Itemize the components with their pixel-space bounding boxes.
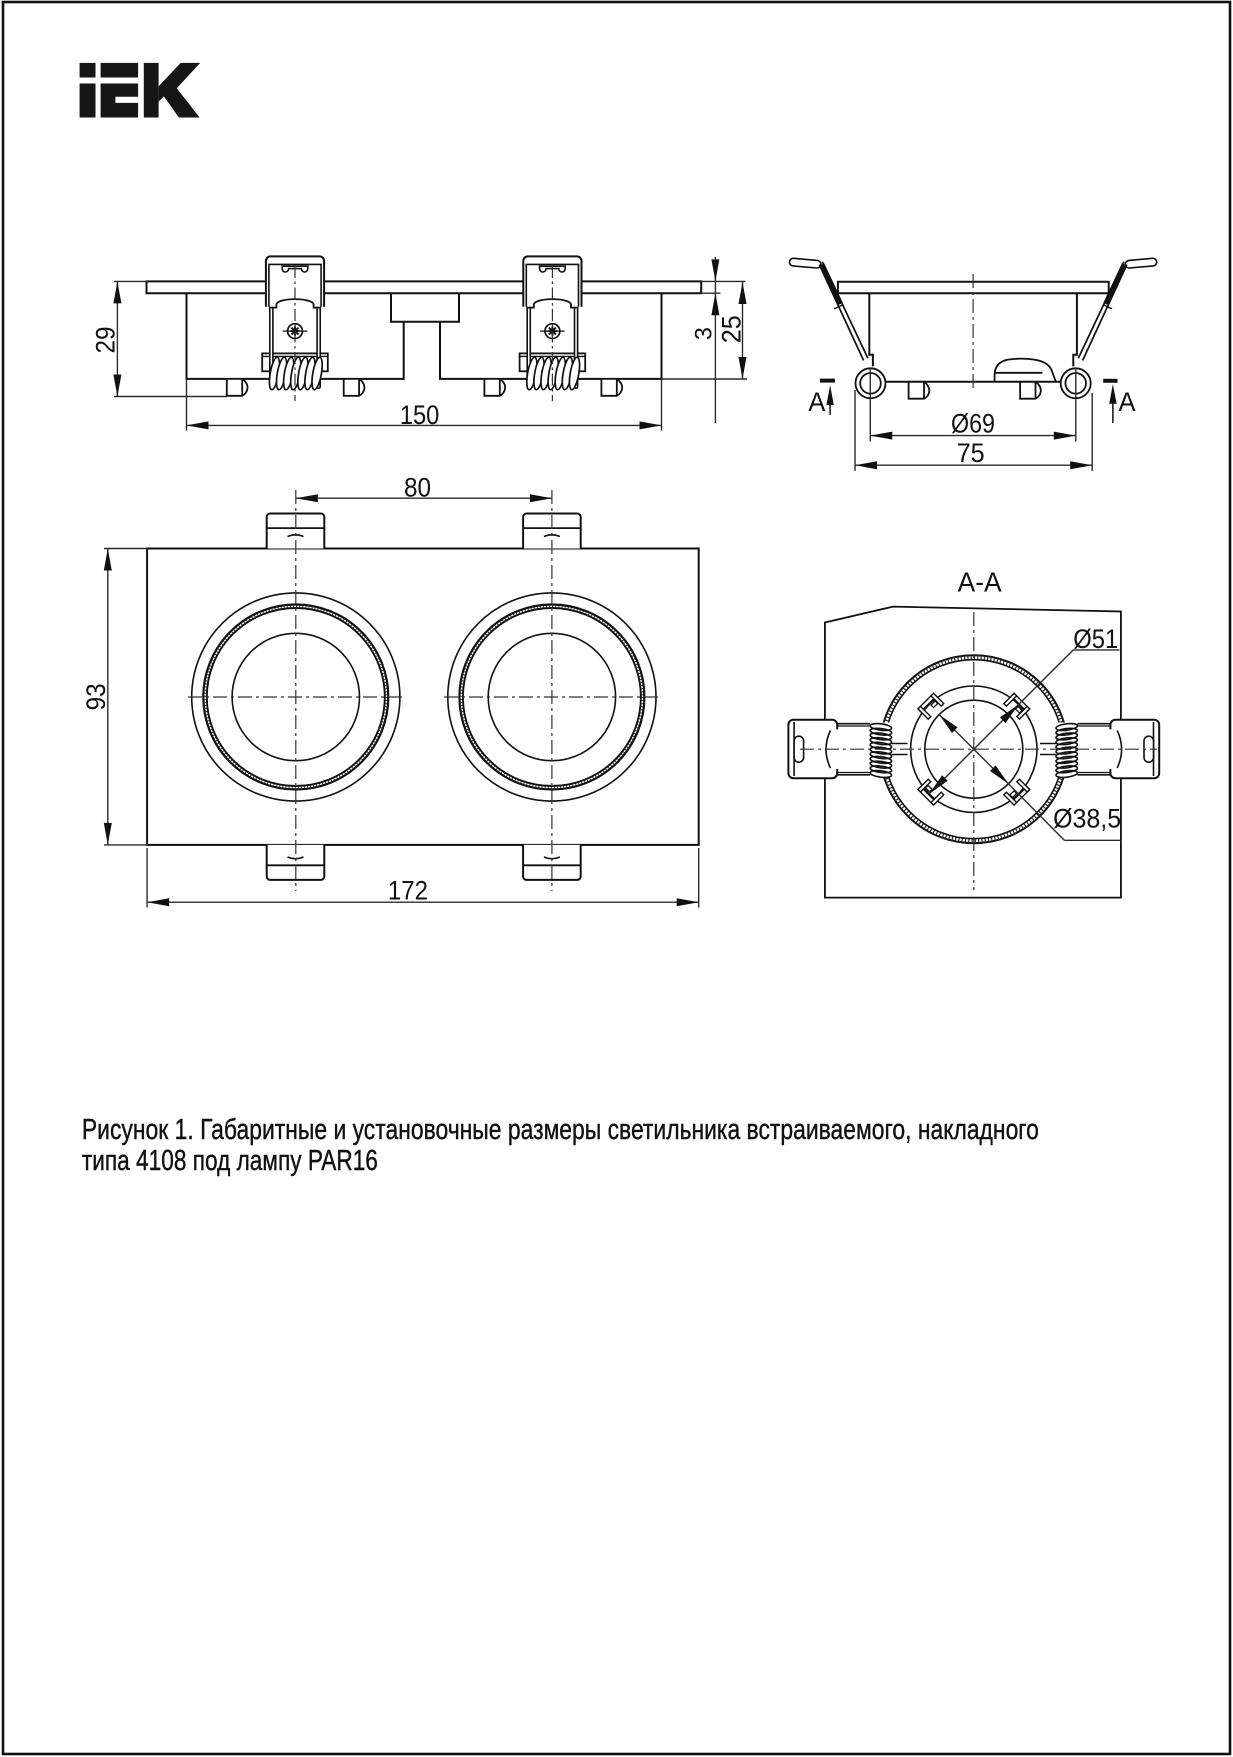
svg-text:Рисунок 1. Габаритные и устано: Рисунок 1. Габаритные и установочные раз… [82,1114,1039,1146]
svg-text:75: 75 [957,438,985,468]
svg-text:150: 150 [400,400,440,430]
svg-text:93: 93 [81,683,111,710]
svg-text:172: 172 [388,875,428,905]
svg-text:A-A: A-A [958,567,1002,598]
svg-text:29: 29 [91,327,121,354]
svg-text:25: 25 [717,315,747,343]
svg-text:3: 3 [690,327,717,340]
svg-text:A: A [1119,387,1136,417]
svg-text:Ø38,5: Ø38,5 [1053,804,1121,834]
svg-text:A: A [808,387,825,417]
svg-text:Ø51: Ø51 [1073,624,1118,654]
svg-text:Ø69: Ø69 [951,409,995,439]
svg-text:80: 80 [404,472,431,502]
svg-text:типа 4108 под лампу PAR16: типа 4108 под лампу PAR16 [82,1145,378,1177]
